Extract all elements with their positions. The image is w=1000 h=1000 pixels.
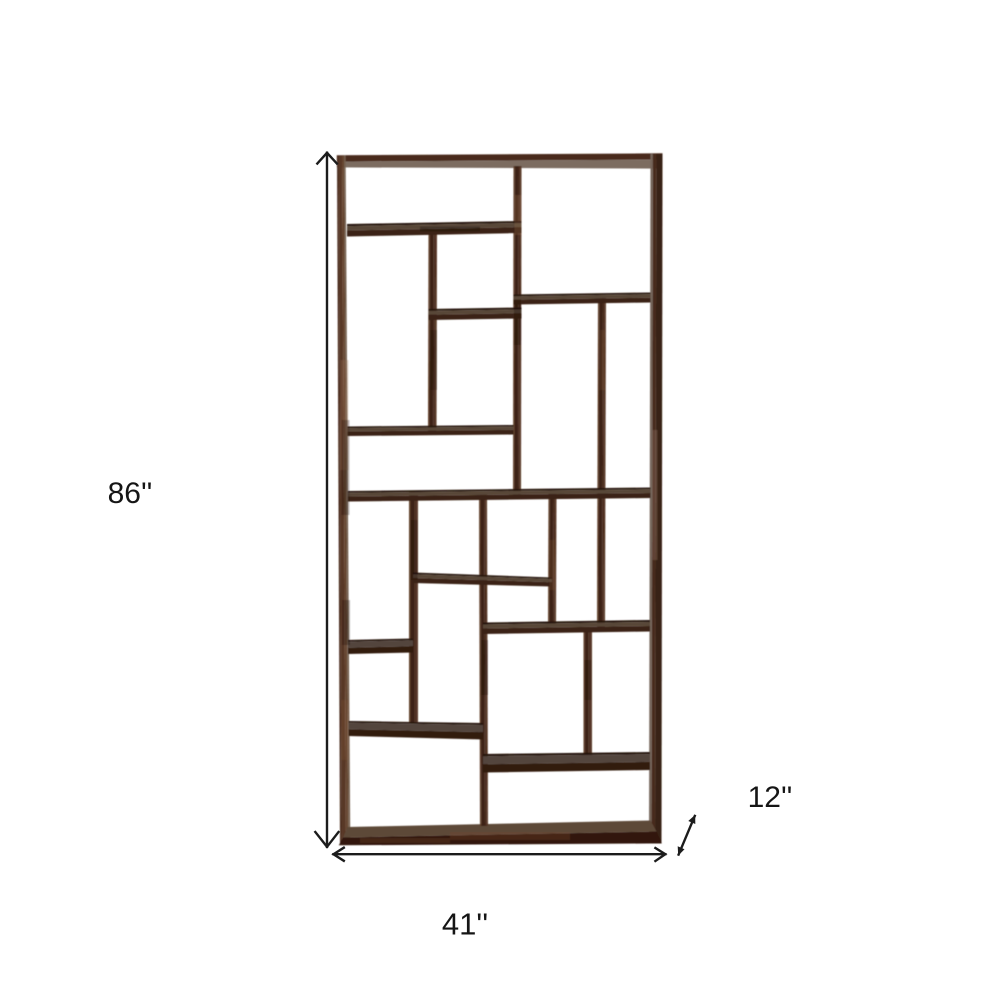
svg-text:41'': 41''	[442, 907, 488, 942]
svg-text:86'': 86''	[108, 477, 153, 510]
svg-text:12'': 12''	[748, 781, 793, 814]
